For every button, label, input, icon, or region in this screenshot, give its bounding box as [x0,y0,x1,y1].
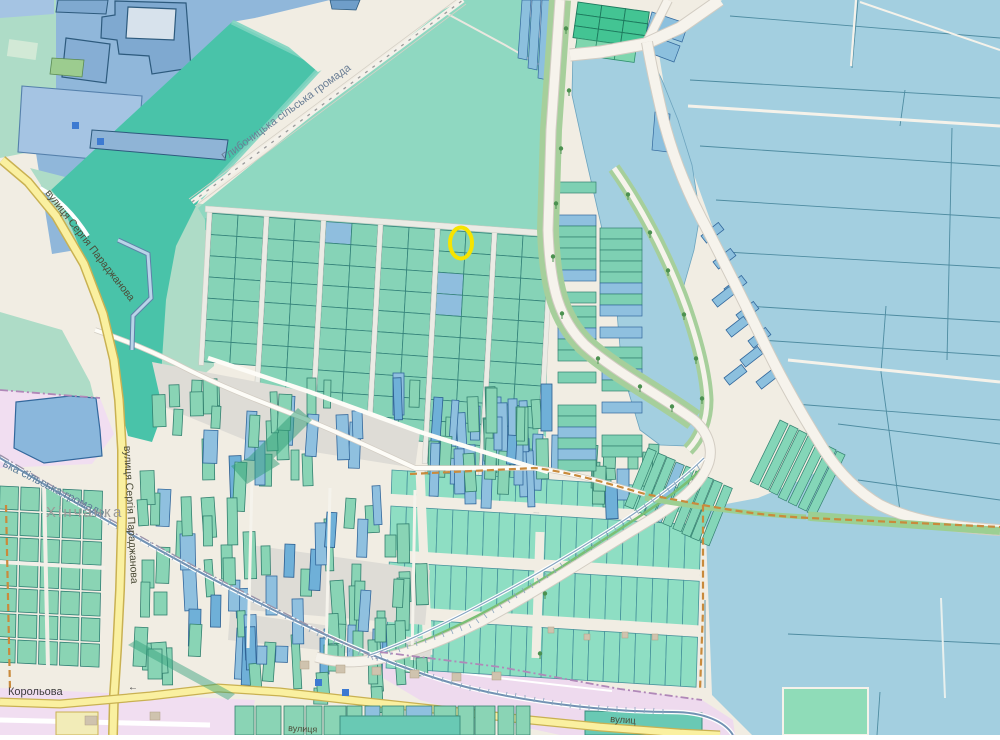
svg-text:вулиця: вулиця [288,723,318,735]
svg-text:Корольова: Корольова [8,686,64,698]
svg-text:Хінчанка: Хінчанка [46,504,123,521]
svg-text:←: ← [128,682,138,693]
svg-text:вулиц: вулиц [610,714,637,727]
